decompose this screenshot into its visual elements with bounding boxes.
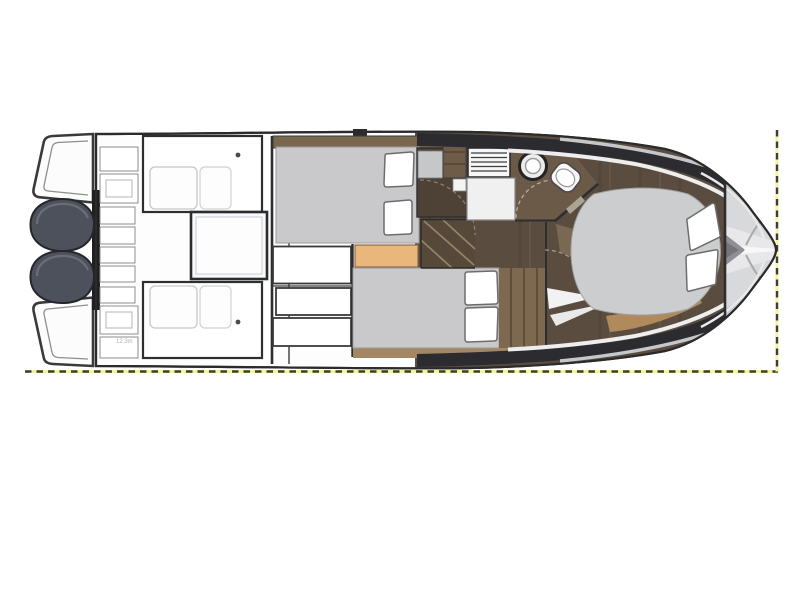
svg-text:12.3m: 12.3m <box>116 339 133 345</box>
